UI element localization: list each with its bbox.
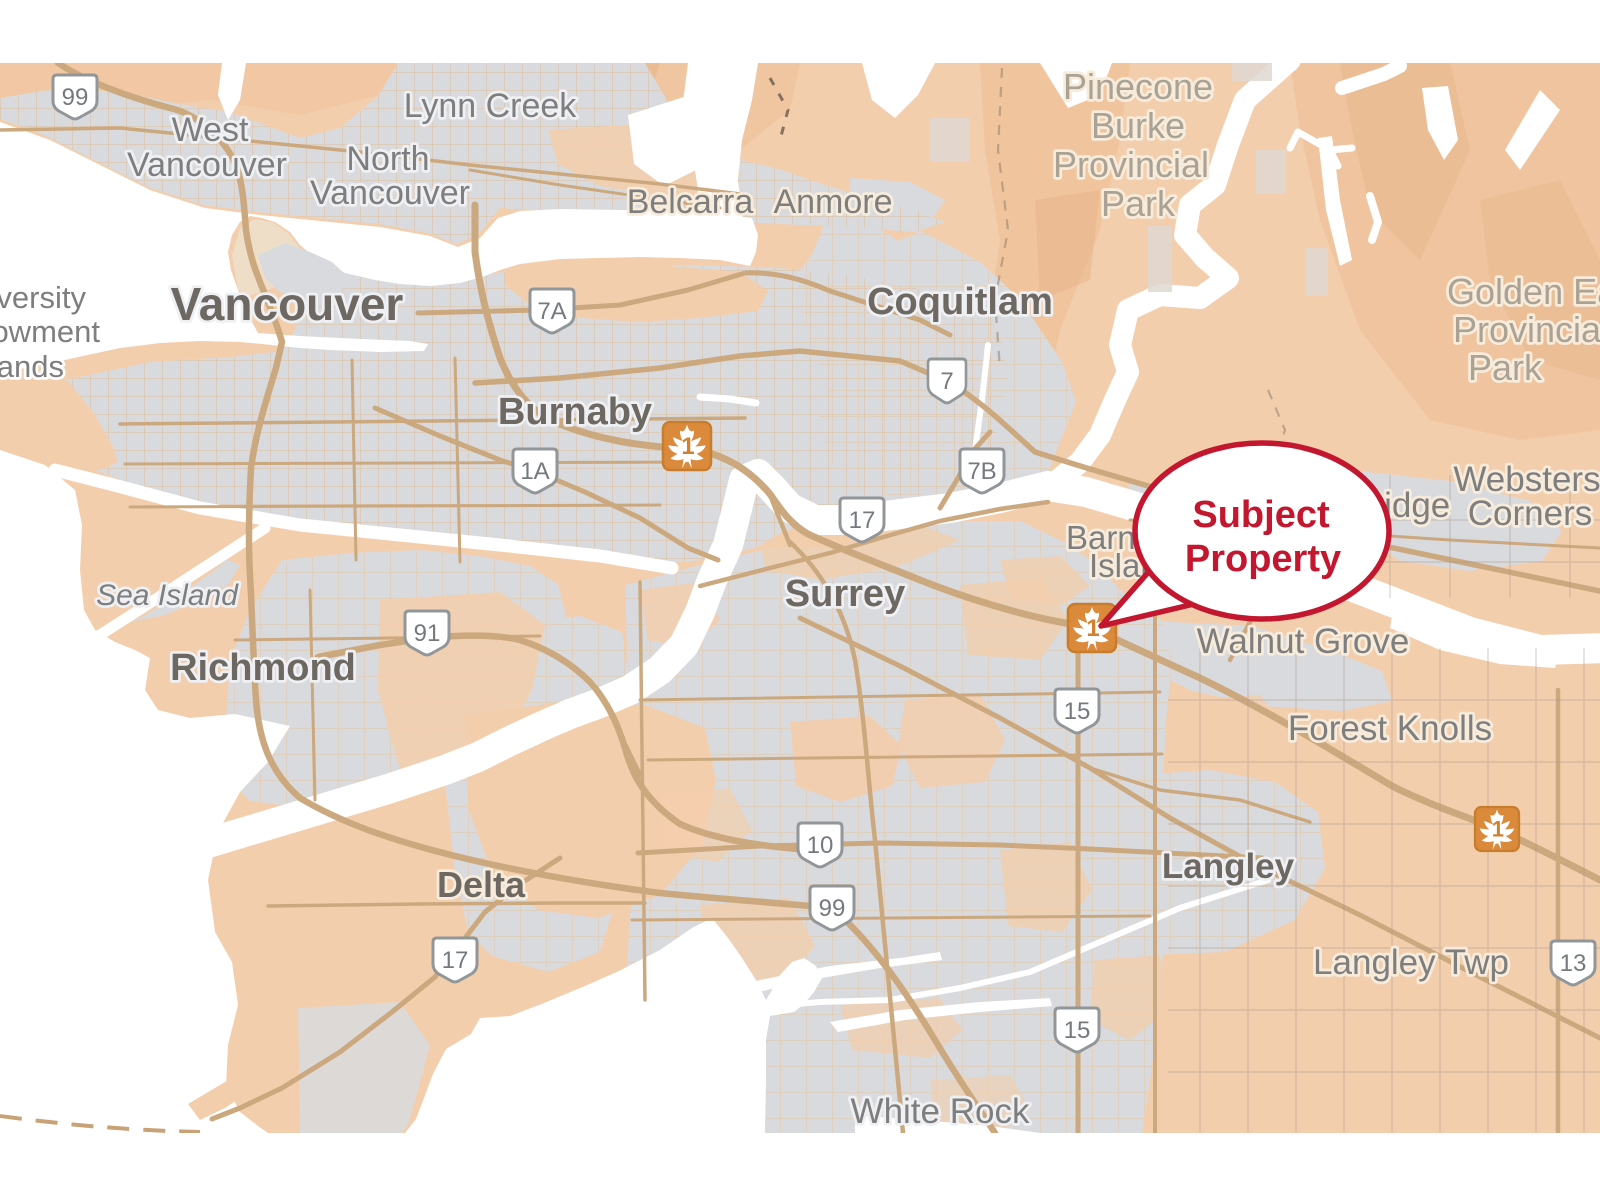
svg-text:13: 13 xyxy=(1560,950,1587,977)
svg-text:Langley: Langley xyxy=(1162,847,1295,886)
svg-text:Corners: Corners xyxy=(1468,494,1592,533)
svg-text:17: 17 xyxy=(442,947,469,974)
svg-text:Sea Island: Sea Island xyxy=(96,579,239,612)
svg-text:Lynn Creek: Lynn Creek xyxy=(404,87,578,125)
svg-text:Walnut Grove: Walnut Grove xyxy=(1197,622,1410,661)
svg-text:Park: Park xyxy=(1101,183,1176,224)
svg-text:Forest Knolls: Forest Knolls xyxy=(1288,709,1492,748)
svg-text:Vancouver: Vancouver xyxy=(171,278,404,330)
svg-text:1: 1 xyxy=(681,433,694,460)
svg-text:Burke: Burke xyxy=(1091,105,1185,146)
svg-text:Anmore: Anmore xyxy=(773,183,892,221)
svg-text:7B: 7B xyxy=(967,458,996,485)
svg-text:Vancouver: Vancouver xyxy=(310,174,470,212)
svg-text:North: North xyxy=(346,140,429,178)
svg-text:Subject: Subject xyxy=(1192,494,1330,536)
svg-text:University: University xyxy=(0,280,86,315)
svg-text:Delta: Delta xyxy=(437,864,526,905)
svg-text:Vancouver: Vancouver xyxy=(127,146,287,184)
svg-text:White Rock: White Rock xyxy=(851,1092,1030,1131)
svg-text:Lands: Lands xyxy=(0,349,64,384)
svg-text:Pinecone: Pinecone xyxy=(1063,66,1213,107)
svg-text:1A: 1A xyxy=(520,458,549,485)
svg-text:7: 7 xyxy=(940,368,953,395)
svg-text:Provincial: Provincial xyxy=(1453,309,1600,350)
svg-text:91: 91 xyxy=(414,620,441,647)
svg-text:Endowment: Endowment xyxy=(0,314,100,349)
svg-text:15: 15 xyxy=(1064,698,1091,725)
svg-text:Coquitlam: Coquitlam xyxy=(867,281,1053,323)
svg-text:1: 1 xyxy=(1086,615,1099,642)
svg-text:15: 15 xyxy=(1064,1017,1091,1044)
svg-text:West: West xyxy=(172,111,249,149)
svg-text:Property: Property xyxy=(1185,538,1341,580)
svg-text:Park: Park xyxy=(1468,347,1543,388)
svg-text:1: 1 xyxy=(1492,816,1504,841)
svg-text:Richmond: Richmond xyxy=(170,647,356,689)
svg-text:99: 99 xyxy=(819,895,846,922)
svg-text:Burnaby: Burnaby xyxy=(498,391,652,433)
svg-text:10: 10 xyxy=(807,832,834,859)
svg-text:Golden Eagle: Golden Eagle xyxy=(1447,271,1600,312)
svg-text:17: 17 xyxy=(849,507,876,534)
svg-text:Surrey: Surrey xyxy=(785,573,905,615)
svg-text:99: 99 xyxy=(62,84,89,111)
svg-text:Provincial: Provincial xyxy=(1053,144,1209,185)
svg-text:Langley Twp: Langley Twp xyxy=(1313,943,1509,982)
svg-text:Belcarra: Belcarra xyxy=(627,183,754,221)
svg-text:7A: 7A xyxy=(537,298,566,325)
